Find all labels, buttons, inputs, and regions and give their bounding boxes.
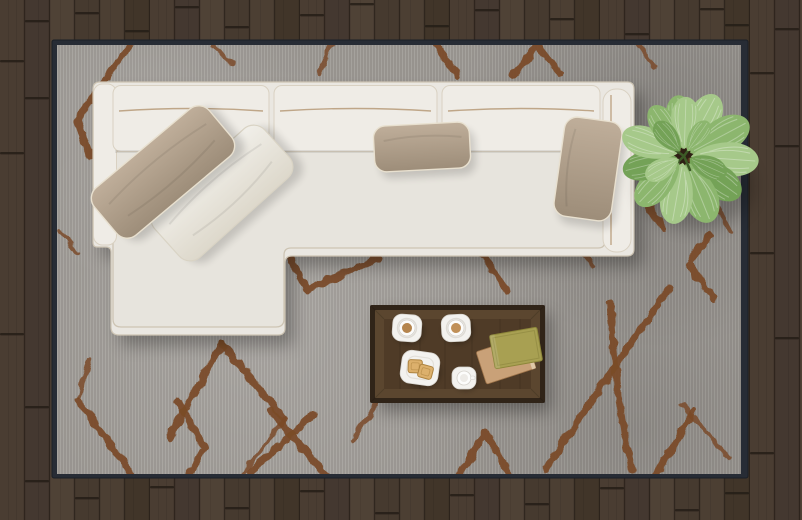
- espresso-cup: [452, 367, 479, 392]
- coffee-table: [370, 305, 545, 403]
- living-room-top-view: [0, 0, 802, 520]
- lumbar-pillow-center: [373, 121, 477, 179]
